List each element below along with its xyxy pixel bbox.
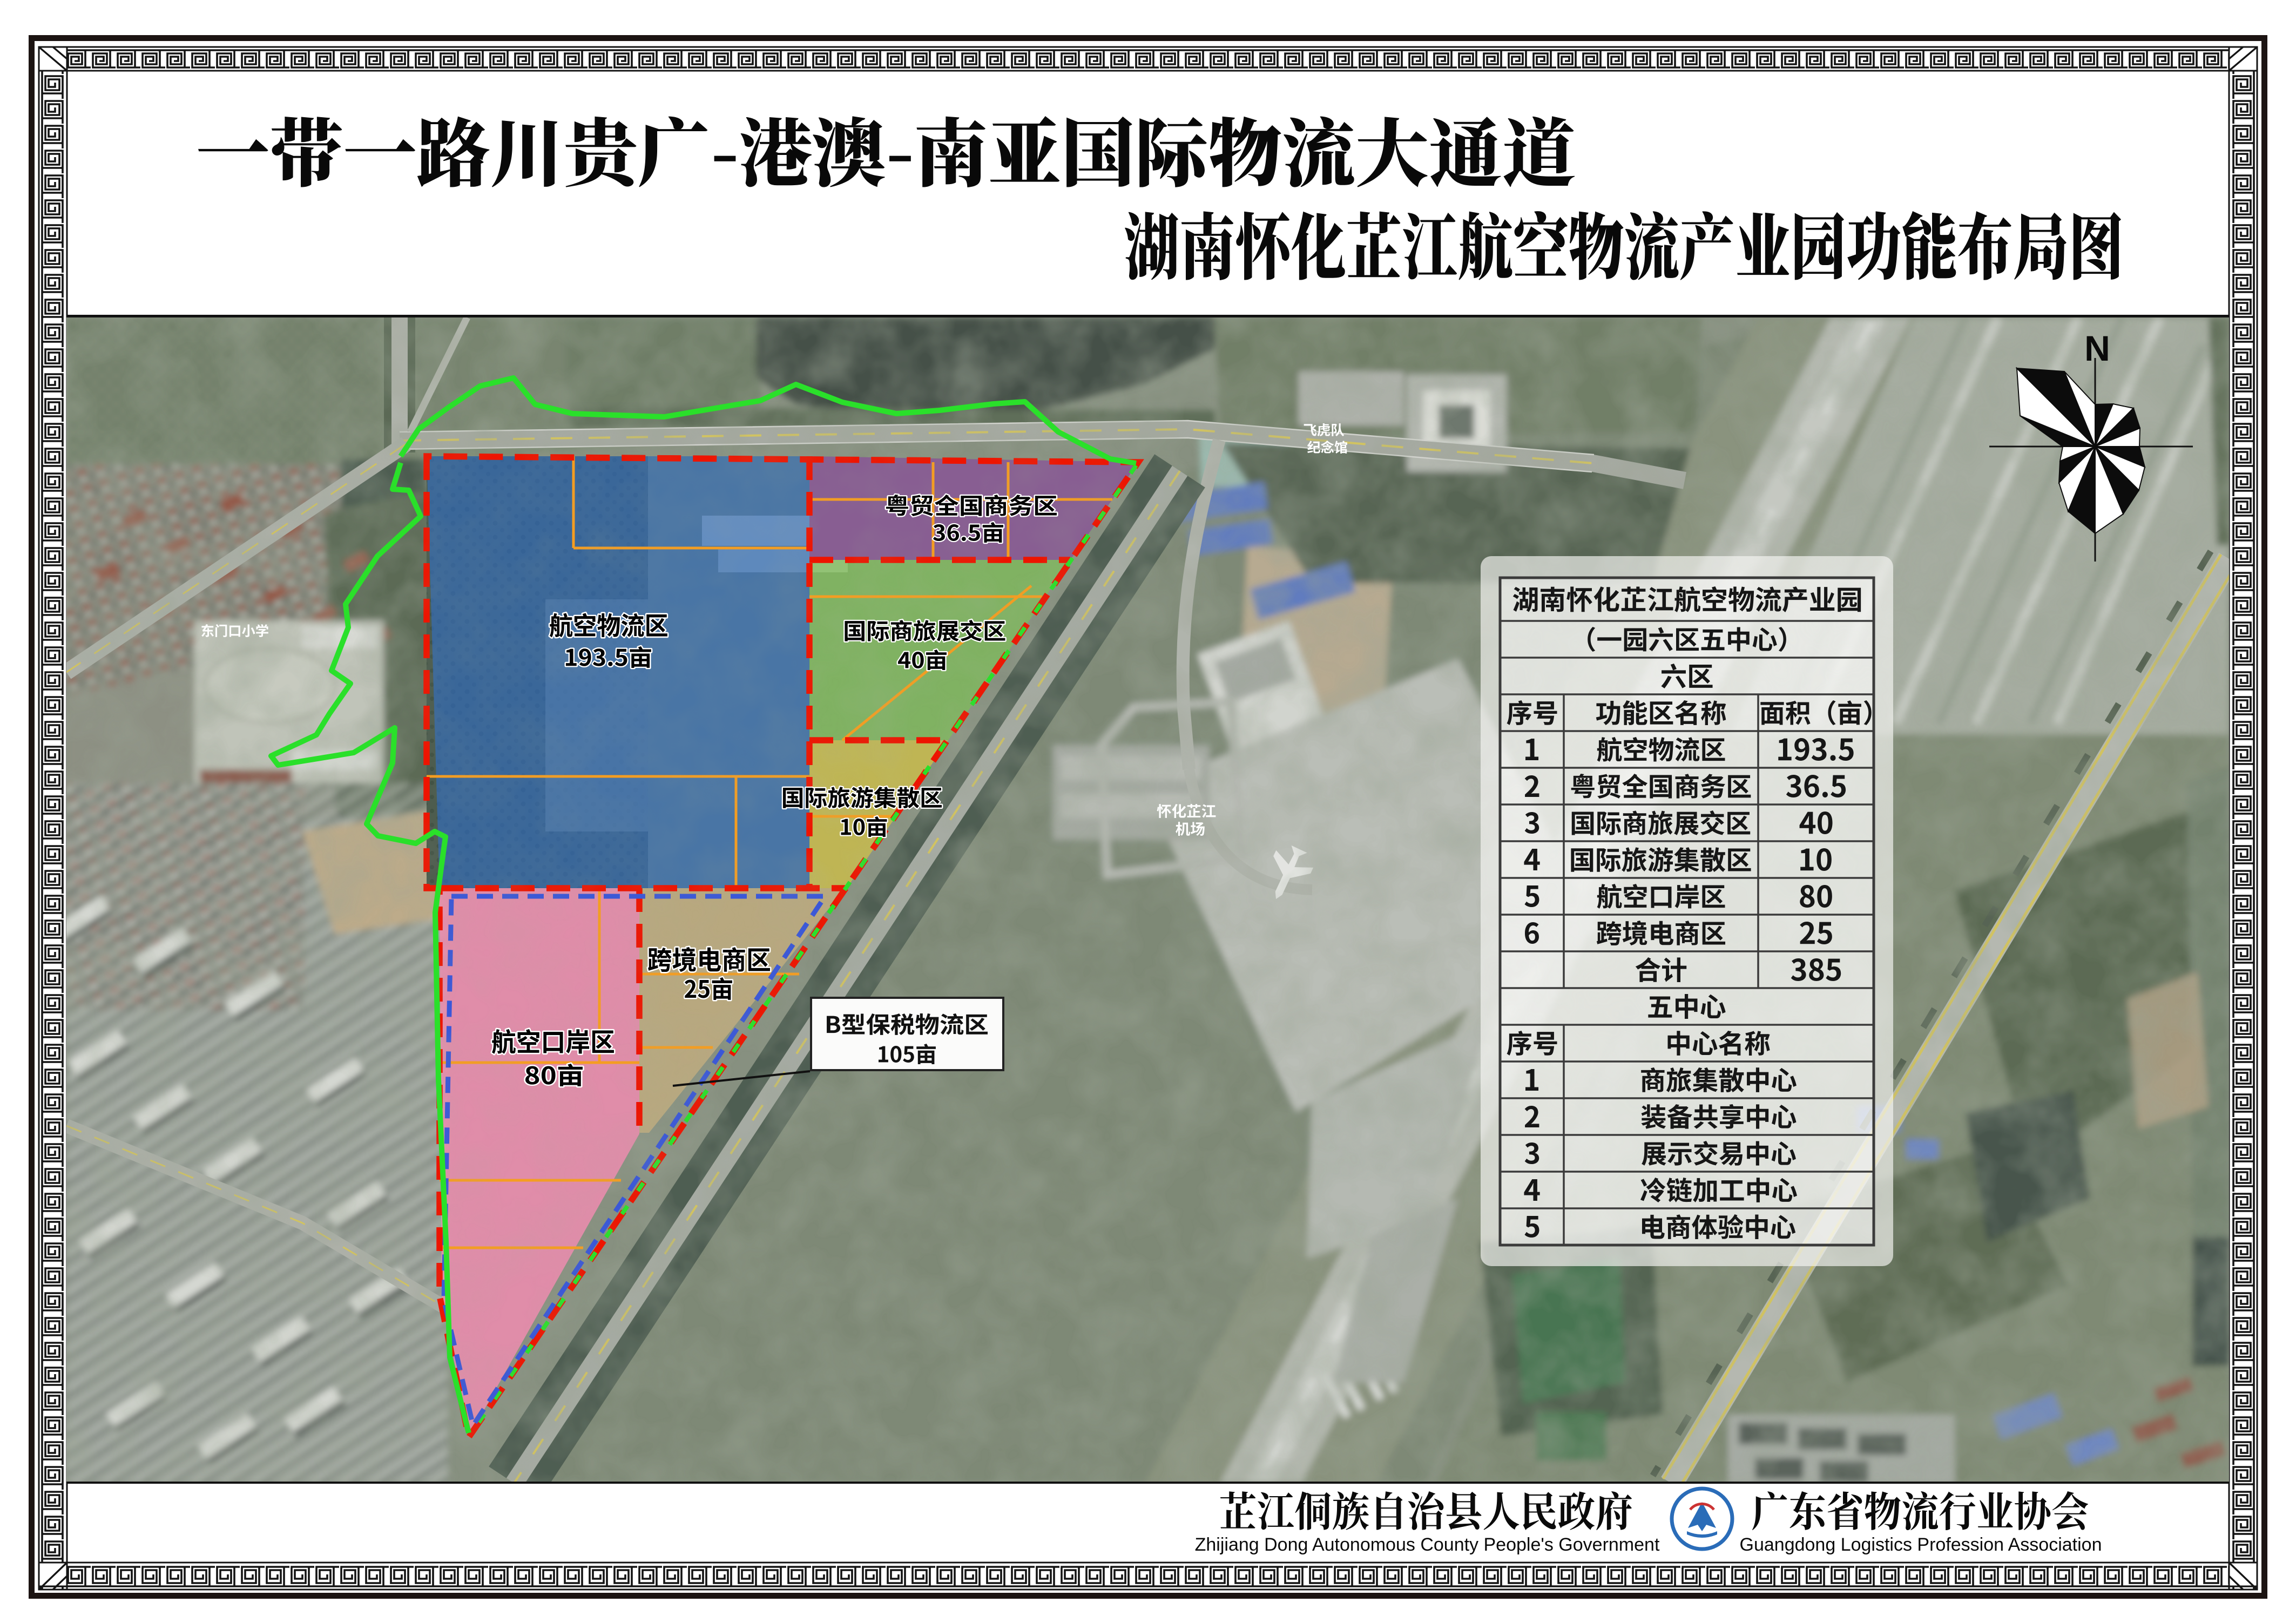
svg-text:N: N [2084, 328, 2110, 368]
svg-text:Guangdong Logistics Profession: Guangdong Logistics Profession Associati… [1740, 1534, 2102, 1555]
svg-text:Zhijiang Dong Autonomous Count: Zhijiang Dong Autonomous County People's… [1195, 1534, 1660, 1555]
